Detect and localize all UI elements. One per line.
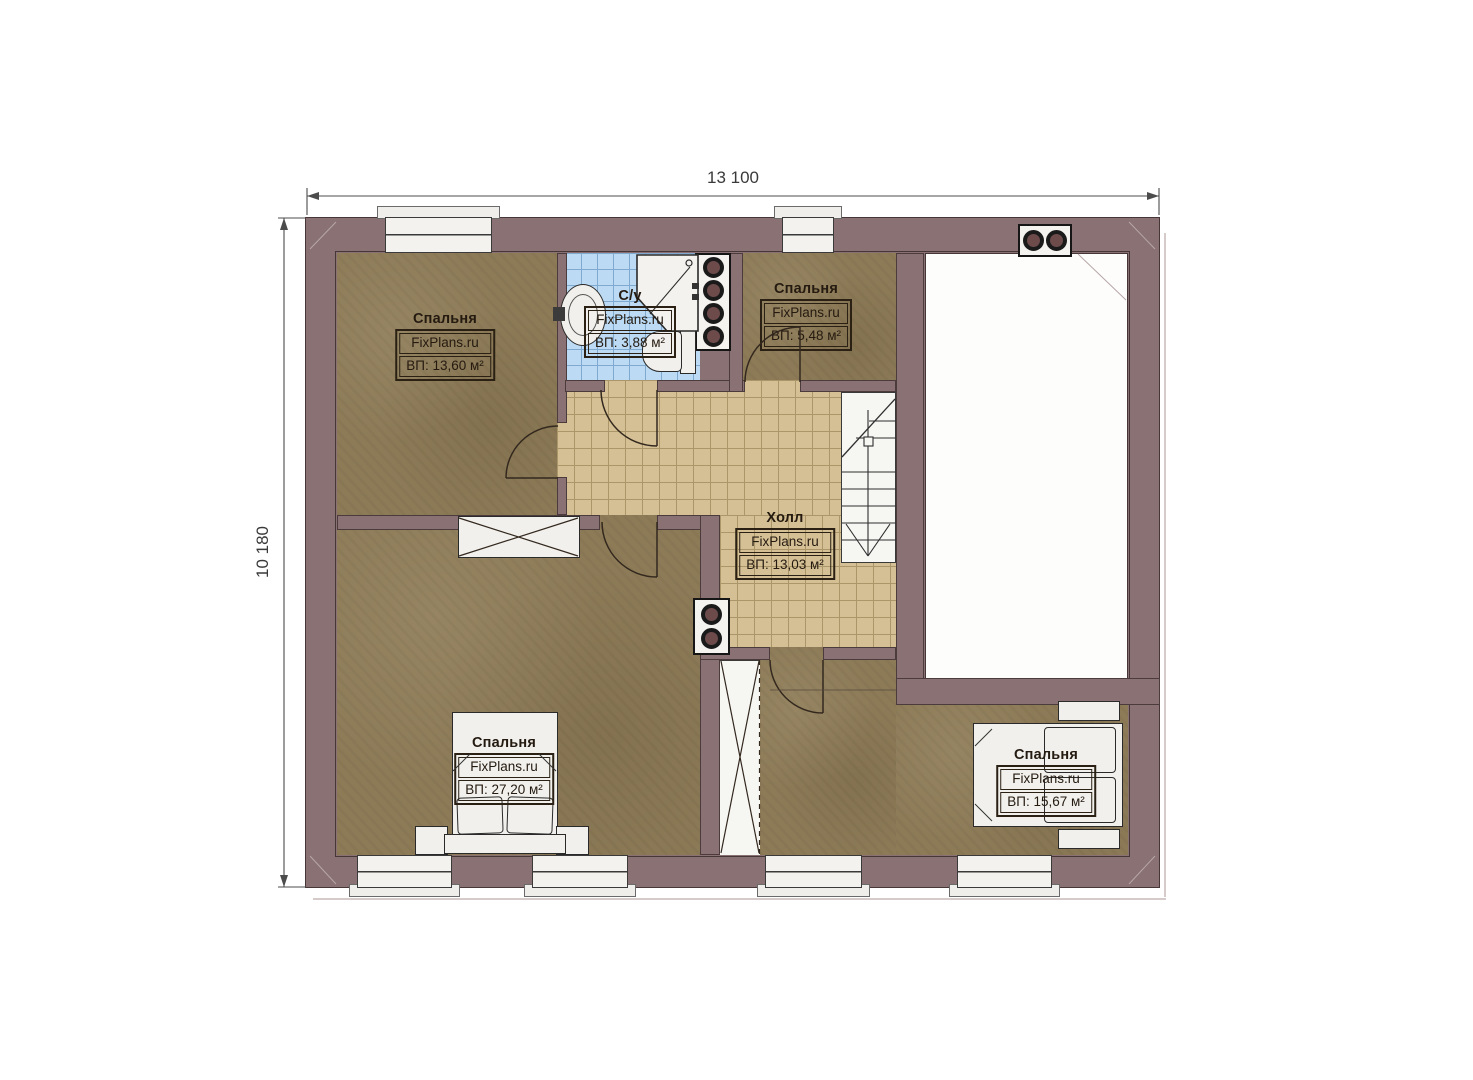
- room-name: С/у: [584, 288, 676, 304]
- chimney-stack: [1018, 224, 1072, 257]
- floor-void-room: [925, 253, 1128, 681]
- window: [765, 855, 862, 888]
- watermark-text: FixPlans.ru: [399, 333, 491, 354]
- label-box: FixPlans.ru ВП: 27,20 м²: [454, 753, 554, 805]
- room-area: ВП: 15,67 м²: [1000, 792, 1092, 813]
- room-name: Спальня: [996, 747, 1096, 763]
- wall: [729, 253, 743, 392]
- wall: [800, 380, 896, 392]
- room-area: ВП: 13,60 м²: [399, 356, 491, 377]
- room-name: Спальня: [395, 311, 495, 327]
- nightstand: [1058, 829, 1120, 849]
- staircase: [841, 392, 896, 563]
- watermark-text: FixPlans.ru: [1000, 769, 1092, 790]
- wall: [700, 515, 720, 855]
- arrow-icon: [280, 218, 288, 230]
- room-label-hall: Холл FixPlans.ru ВП: 13,03 м²: [735, 510, 835, 580]
- toilet-cistern: [680, 327, 696, 374]
- watermark-text: FixPlans.ru: [739, 532, 831, 553]
- room-label-bedroom-bottom-left: Спальня FixPlans.ru ВП: 27,20 м²: [454, 735, 554, 805]
- wall: [565, 380, 605, 392]
- shaft: [720, 660, 760, 855]
- arrow-icon: [1147, 192, 1159, 200]
- window: [385, 217, 492, 253]
- room-label-bedroom-top-middle: Спальня FixPlans.ru ВП: 5,48 м²: [760, 281, 852, 351]
- room-area: ВП: 3,88 м²: [588, 333, 672, 354]
- label-box: FixPlans.ru ВП: 5,48 м²: [760, 299, 852, 351]
- arrow-icon: [280, 875, 288, 887]
- room-label-bedroom-top-left: Спальня FixPlans.ru ВП: 13,60 м²: [395, 311, 495, 381]
- dimension-width: 13 100: [707, 168, 759, 188]
- room-label-bedroom-bottom-right: Спальня FixPlans.ru ВП: 15,67 м²: [996, 747, 1096, 817]
- nightstand: [1058, 701, 1120, 721]
- room-area: ВП: 27,20 м²: [458, 780, 550, 801]
- wall: [896, 253, 924, 705]
- vent-flue-icon: [701, 604, 722, 625]
- wardrobe: [458, 516, 580, 558]
- room-area: ВП: 13,03 м²: [739, 555, 831, 576]
- label-box: FixPlans.ru ВП: 15,67 м²: [996, 765, 1096, 817]
- floor-bedroom-bottom-right: [760, 647, 896, 855]
- floor-bedroom-top-left: [337, 253, 557, 515]
- watermark-text: FixPlans.ru: [588, 310, 672, 331]
- vent-stack: [695, 253, 731, 351]
- vent-flue-icon: [703, 257, 724, 278]
- room-name: Спальня: [760, 281, 852, 297]
- watermark-text: FixPlans.ru: [458, 757, 550, 778]
- window: [782, 217, 834, 253]
- dimension-height: 10 180: [253, 526, 273, 578]
- faucet-icon: [553, 307, 565, 321]
- room-name: Спальня: [454, 735, 554, 751]
- watermark-text: FixPlans.ru: [764, 303, 848, 324]
- vent-flue-icon: [703, 280, 724, 301]
- floor-plan-canvas: Спальня FixPlans.ru ВП: 13,60 м² С/у Fix…: [0, 0, 1473, 1080]
- arrow-icon: [307, 192, 319, 200]
- room-label-bathroom: С/у FixPlans.ru ВП: 3,88 м²: [584, 288, 676, 358]
- wall: [896, 678, 1160, 705]
- bed-headboard: [444, 834, 566, 854]
- wall: [823, 647, 896, 660]
- floor-hall-upper: [557, 380, 846, 515]
- vent-flue-icon: [701, 628, 722, 649]
- label-box: FixPlans.ru ВП: 3,88 м²: [584, 306, 676, 358]
- vent-flue-icon: [1046, 230, 1067, 251]
- wall: [557, 477, 567, 515]
- room-name: Холл: [735, 510, 835, 526]
- vent-stack: [693, 598, 730, 655]
- label-box: FixPlans.ru ВП: 13,03 м²: [735, 528, 835, 580]
- window: [357, 855, 452, 888]
- vent-flue-icon: [703, 326, 724, 347]
- wall: [557, 253, 567, 423]
- label-box: FixPlans.ru ВП: 13,60 м²: [395, 329, 495, 381]
- vent-flue-icon: [1023, 230, 1044, 251]
- window: [532, 855, 628, 888]
- vent-flue-icon: [703, 303, 724, 324]
- room-area: ВП: 5,48 м²: [764, 326, 848, 347]
- dimension-line-left: [278, 218, 306, 887]
- window: [957, 855, 1052, 888]
